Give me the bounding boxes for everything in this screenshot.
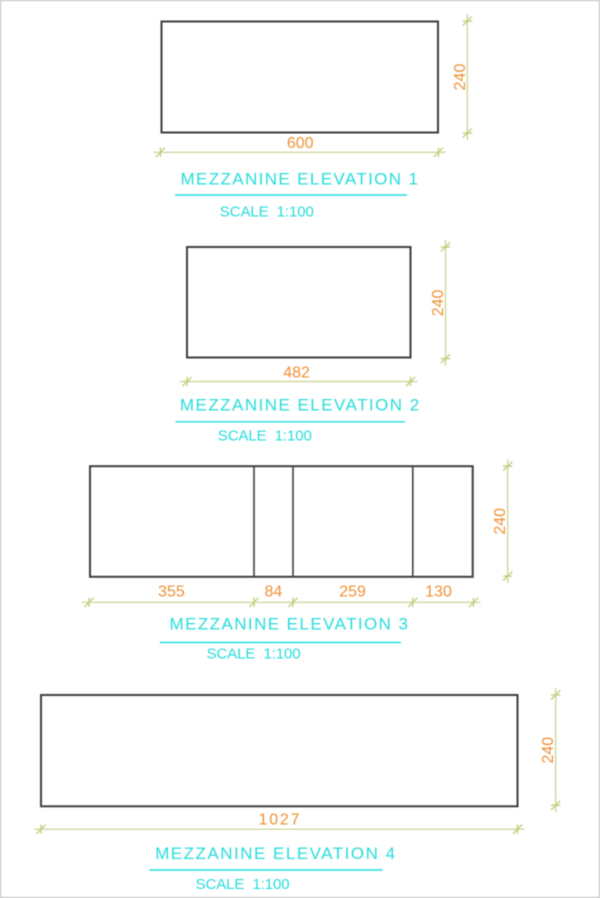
svg-text:MEZZANINE ELEVATION 2: MEZZANINE ELEVATION 2 (180, 395, 419, 414)
svg-text:240: 240 (540, 737, 557, 764)
svg-text:240: 240 (430, 289, 447, 316)
svg-text:482: 482 (283, 364, 310, 381)
svg-text:MEZZANINE ELEVATION 3: MEZZANINE ELEVATION 3 (170, 615, 409, 634)
svg-text:355: 355 (158, 584, 185, 601)
svg-text:MEZZANINE ELEVATION 1: MEZZANINE ELEVATION 1 (181, 169, 419, 188)
svg-text:240: 240 (452, 64, 469, 91)
svg-text:SCALE 1:100: SCALE 1:100 (218, 428, 312, 445)
svg-text:240: 240 (492, 508, 509, 535)
svg-text:600: 600 (287, 135, 314, 152)
svg-text:SCALE 1:100: SCALE 1:100 (207, 646, 301, 663)
svg-text:130: 130 (425, 584, 452, 601)
svg-text:1027: 1027 (259, 812, 300, 829)
svg-text:SCALE 1:100: SCALE 1:100 (220, 204, 314, 221)
svg-text:84: 84 (265, 584, 283, 601)
svg-text:SCALE 1:100: SCALE 1:100 (196, 876, 290, 893)
svg-text:259: 259 (339, 584, 366, 601)
svg-text:MEZZANINE ELEVATION 4: MEZZANINE ELEVATION 4 (155, 844, 395, 863)
